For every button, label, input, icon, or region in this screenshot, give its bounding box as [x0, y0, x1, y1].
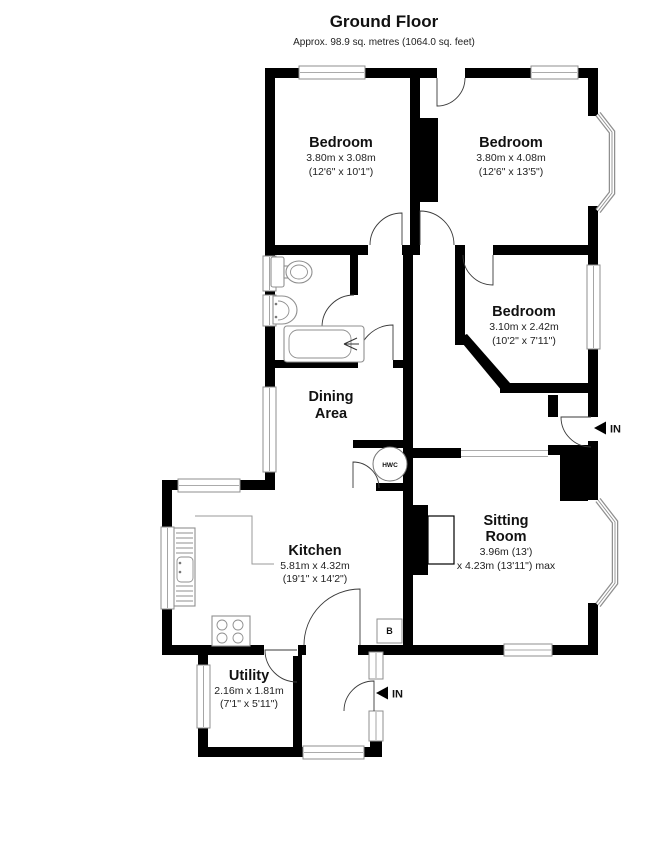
door-arc — [561, 417, 591, 447]
svg-text:(19'1" x 14'2"): (19'1" x 14'2") — [283, 573, 348, 585]
svg-text:(12'6" x 13'5"): (12'6" x 13'5") — [479, 166, 544, 178]
svg-text:3.10m x 2.42m: 3.10m x 2.42m — [489, 321, 559, 333]
bay-window — [598, 114, 612, 211]
svg-text:Bedroom: Bedroom — [479, 135, 543, 151]
boiler-label: B — [386, 626, 393, 636]
door-arc — [304, 589, 360, 645]
svg-text:Area: Area — [315, 406, 348, 422]
fireplace-recess — [428, 516, 454, 564]
hot-water-cylinder: HWC — [373, 447, 407, 481]
toilet-fixture — [271, 257, 312, 287]
window — [303, 746, 364, 759]
svg-text:Bedroom: Bedroom — [492, 304, 556, 320]
room-bedroom-3: Bedroom 3.10m x 2.42m (10'2" x 7'11") — [489, 304, 559, 347]
window — [369, 711, 383, 741]
room-bedroom-2: Bedroom 3.80m x 4.08m (12'6" x 13'5") — [476, 135, 546, 178]
svg-text:Kitchen: Kitchen — [288, 543, 341, 559]
floor-plan: HWC B IN IN Ground Floor Approx. 98.9 sq… — [0, 0, 656, 859]
page-subtitle: Approx. 98.9 sq. metres (1064.0 sq. feet… — [293, 37, 475, 48]
room-kitchen: Kitchen 5.81m x 4.32m (19'1" x 14'2") — [280, 543, 350, 585]
door-arc — [370, 213, 402, 245]
room-bedroom-1: Bedroom 3.80m x 3.08m (12'6" x 10'1") — [306, 135, 376, 178]
window — [178, 479, 240, 492]
window — [263, 387, 276, 472]
room-utility: Utility 2.16m x 1.81m (7'1" x 5'11") — [214, 668, 284, 710]
bathtub-fixture — [284, 326, 364, 362]
window — [299, 66, 365, 79]
svg-text:3.80m x 4.08m: 3.80m x 4.08m — [476, 152, 546, 164]
room-dining-area: Dining Area — [308, 389, 353, 422]
svg-text:(12'6" x 10'1"): (12'6" x 10'1") — [309, 166, 374, 178]
svg-text:x 4.23m (13'11") max: x 4.23m (13'11") max — [457, 560, 556, 572]
sink-fixture — [273, 296, 297, 324]
hwc-label: HWC — [382, 462, 398, 469]
svg-text:3.96m (13'): 3.96m (13') — [480, 546, 533, 558]
door-arc — [322, 295, 354, 327]
arrow-left-icon — [594, 422, 606, 435]
windows — [161, 66, 615, 759]
entrance-rear-label: IN — [392, 689, 403, 701]
door-arc — [420, 211, 454, 245]
entrance-side: IN — [594, 422, 621, 436]
svg-text:5.81m x 4.32m: 5.81m x 4.32m — [280, 560, 350, 572]
window — [587, 265, 600, 349]
door-arc — [437, 78, 465, 106]
page-title: Ground Floor — [330, 12, 439, 31]
bay-window — [598, 500, 615, 605]
window — [197, 665, 210, 728]
svg-text:Sitting: Sitting — [483, 513, 528, 529]
window — [161, 527, 174, 609]
window — [531, 66, 578, 79]
svg-text:(7'1" x 5'11"): (7'1" x 5'11") — [220, 698, 278, 710]
window — [504, 644, 552, 656]
svg-text:3.80m x 3.08m: 3.80m x 3.08m — [306, 152, 376, 164]
counter-outline — [195, 516, 274, 564]
stove-fixture — [212, 616, 250, 646]
room-opening — [461, 451, 548, 457]
svg-text:2.16m x 1.81m: 2.16m x 1.81m — [214, 685, 284, 697]
kitchen-sink-fixture — [174, 528, 195, 606]
svg-text:Dining: Dining — [308, 389, 353, 405]
svg-text:Utility: Utility — [229, 668, 269, 684]
svg-text:(10'2" x 7'11"): (10'2" x 7'11") — [492, 335, 556, 347]
window — [369, 652, 383, 679]
room-sitting-room: Sitting Room 3.96m (13') x 4.23m (13'11"… — [457, 513, 556, 572]
door-arc — [463, 255, 493, 285]
entrance-side-label: IN — [610, 424, 621, 436]
boiler: B — [377, 619, 402, 643]
svg-text:Bedroom: Bedroom — [309, 135, 373, 151]
svg-text:Room: Room — [485, 529, 526, 545]
